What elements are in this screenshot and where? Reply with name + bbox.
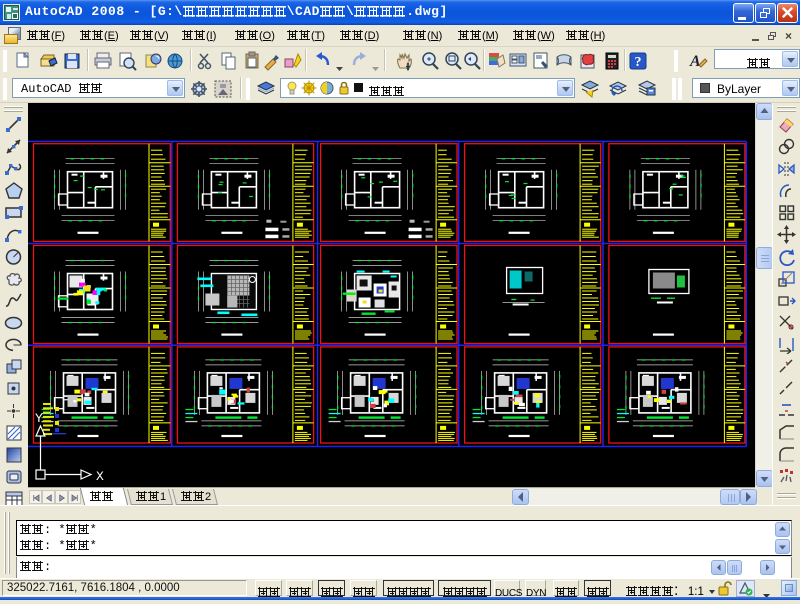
svg-text:Y: Y	[35, 411, 43, 426]
svg-text:?: ?	[635, 55, 642, 70]
svg-text:A: A	[689, 53, 701, 70]
svg-text:X: X	[96, 469, 104, 484]
